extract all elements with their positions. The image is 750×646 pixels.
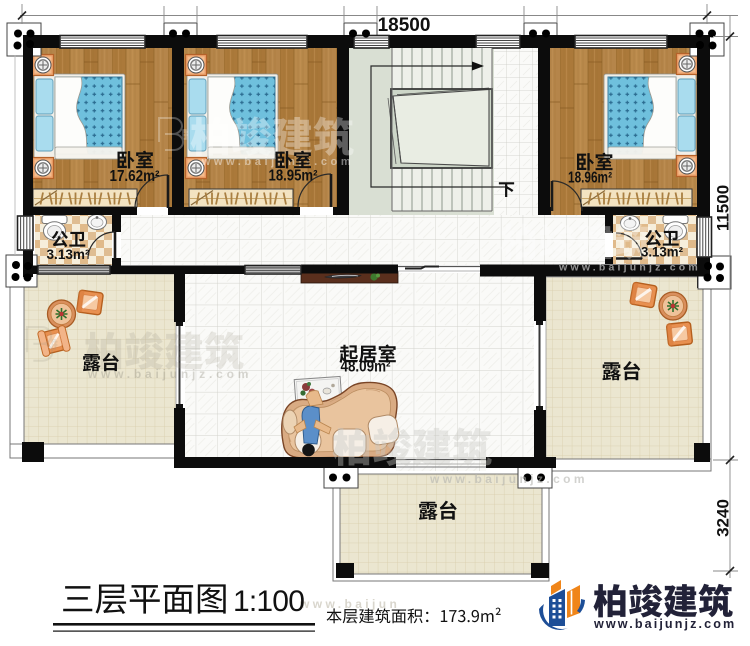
svg-text:www.baijunjz.com: www.baijunjz.com xyxy=(593,617,736,631)
svg-text:www.baijunjz.com: www.baijunjz.com xyxy=(558,262,701,274)
svg-text:18.96m²: 18.96m² xyxy=(568,170,612,187)
svg-text:18500: 18500 xyxy=(378,15,431,36)
svg-text:3.13m²: 3.13m² xyxy=(47,247,90,262)
svg-text:11500: 11500 xyxy=(714,185,733,231)
svg-text:1:100: 1:100 xyxy=(233,585,304,618)
svg-text:48.09m²: 48.09m² xyxy=(341,359,391,376)
svg-text:18.95m²: 18.95m² xyxy=(269,168,318,185)
svg-text:www.baijunjz.com: www.baijunjz.com xyxy=(429,472,588,486)
svg-text:3240: 3240 xyxy=(714,499,733,537)
svg-text:3.13m²: 3.13m² xyxy=(641,245,683,260)
svg-text:17.62m²: 17.62m² xyxy=(110,168,160,185)
